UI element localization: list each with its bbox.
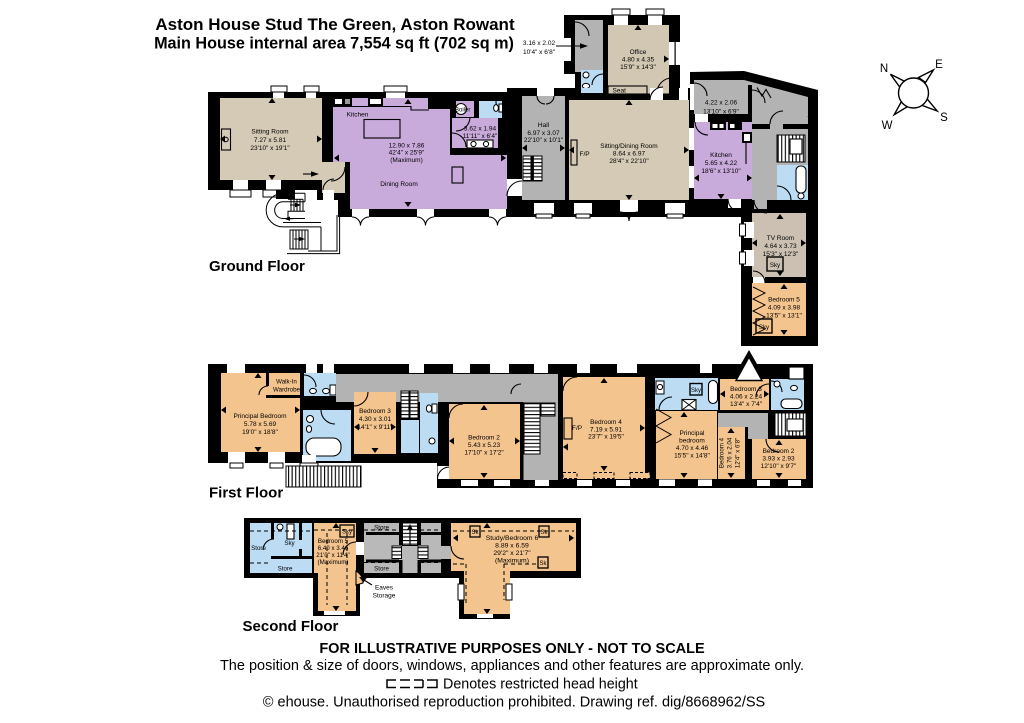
svg-text:Bedroom 4: Bedroom 4	[590, 419, 622, 426]
svg-text:Bedroom 5: Bedroom 5	[768, 297, 800, 304]
svg-text:Denotes restricted head height: Denotes restricted head height	[443, 677, 638, 693]
svg-text:3.16 x 2.02: 3.16 x 2.02	[523, 40, 556, 47]
svg-text:N: N	[880, 63, 888, 75]
svg-text:Walk-In: Walk-In	[276, 379, 297, 386]
svg-text:Store: Store	[278, 565, 293, 572]
svg-text:22'10" x 10'1": 22'10" x 10'1"	[524, 137, 564, 144]
svg-text:Store: Store	[374, 525, 389, 532]
svg-text:Kitchen: Kitchen	[347, 112, 369, 119]
svg-text:Store: Store	[374, 565, 389, 572]
svg-text:Second Floor: Second Floor	[243, 618, 339, 635]
svg-text:Bedroom 4: Bedroom 4	[719, 437, 726, 468]
svg-text:4.30 x 3.01: 4.30 x 3.01	[359, 416, 392, 423]
svg-text:13'4" x 7'4": 13'4" x 7'4"	[730, 401, 763, 408]
svg-text:Sk: Sk	[539, 561, 547, 567]
svg-text:Eaves: Eaves	[375, 585, 394, 592]
svg-text:The position & size of doors,: The position & size of doors, windows, a…	[220, 658, 804, 674]
svg-text:23'7" x 19'5": 23'7" x 19'5"	[588, 434, 624, 441]
svg-text:13'10" x 6'9": 13'10" x 6'9"	[703, 109, 739, 116]
svg-text:7.27 x 5.81: 7.27 x 5.81	[254, 137, 287, 144]
svg-text:17'10" x 17'2": 17'10" x 17'2"	[464, 450, 504, 457]
svg-text:Sky: Sky	[759, 324, 770, 331]
svg-text:11'11" x 6'4": 11'11" x 6'4"	[463, 133, 498, 140]
svg-text:Main House internal area 7,554: Main House internal area 7,554 sq ft (70…	[154, 35, 514, 53]
svg-text:F/P: F/P	[580, 151, 590, 158]
svg-text:8.64 x 6.97: 8.64 x 6.97	[613, 151, 646, 158]
svg-text:Store: Store	[251, 545, 266, 552]
svg-text:3.62 x 1.94: 3.62 x 1.94	[464, 126, 497, 133]
svg-text:12.90 x 7.86: 12.90 x 7.86	[389, 142, 425, 149]
svg-text:E: E	[935, 59, 943, 71]
svg-text:28'4" x 22'10": 28'4" x 22'10"	[609, 158, 649, 165]
svg-text:F/P: F/P	[572, 425, 582, 432]
svg-text:Sitting Room: Sitting Room	[251, 129, 288, 136]
svg-text:Sky: Sky	[284, 540, 295, 547]
svg-text:Principal: Principal	[680, 430, 705, 437]
svg-text:© ehouse. Unauthorised reprodu: © ehouse. Unauthorised reproduction proh…	[263, 695, 765, 711]
svg-text:(Maximum): (Maximum)	[318, 559, 349, 566]
svg-text:Seat: Seat	[613, 88, 627, 95]
svg-text:29'2" x 21'7": 29'2" x 21'7"	[493, 550, 531, 557]
svg-text:19'0" x 18'8": 19'0" x 18'8"	[242, 429, 278, 436]
svg-text:(Maximum): (Maximum)	[495, 558, 529, 565]
svg-text:Hall: Hall	[538, 122, 550, 129]
svg-text:Bedroom 3: Bedroom 3	[730, 386, 762, 393]
svg-text:4.09 x 3.98: 4.09 x 3.98	[768, 305, 801, 312]
svg-text:42'4" x 25'9": 42'4" x 25'9"	[389, 150, 425, 157]
svg-text:Principal Bedroom: Principal Bedroom	[233, 413, 286, 420]
svg-text:14'1" x 9'11": 14'1" x 9'11"	[357, 424, 393, 431]
svg-text:Sitting/Dining Room: Sitting/Dining Room	[600, 143, 657, 150]
svg-text:10'4" x 6'8": 10'4" x 6'8"	[523, 49, 556, 56]
svg-text:TV Room: TV Room	[767, 235, 794, 242]
svg-text:Bedroom 5: Bedroom 5	[318, 538, 349, 545]
svg-text:15'9" x 14'3": 15'9" x 14'3"	[620, 64, 656, 71]
svg-text:4.22 x 2.06: 4.22 x 2.06	[705, 100, 738, 107]
svg-text:7.19 x 5.91: 7.19 x 5.91	[590, 426, 623, 433]
svg-text:Sky: Sky	[770, 262, 781, 269]
svg-text:5.43 x 5.23: 5.43 x 5.23	[468, 442, 501, 449]
svg-text:bedroom: bedroom	[679, 438, 705, 445]
svg-text:S: S	[940, 112, 948, 124]
svg-text:Study/Bedroom 6: Study/Bedroom 6	[486, 535, 539, 542]
svg-text:3.93 x 2.93: 3.93 x 2.93	[762, 456, 795, 463]
svg-text:(Maximum): (Maximum)	[390, 157, 423, 164]
svg-text:Storage: Storage	[373, 593, 396, 600]
svg-text:Kitchen: Kitchen	[710, 152, 732, 159]
svg-text:Dining Room: Dining Room	[380, 181, 418, 188]
svg-text:3.76 x 2.04: 3.76 x 2.04	[727, 437, 734, 468]
svg-text:Wardrobe: Wardrobe	[273, 387, 300, 394]
svg-text:4.80 x 4.35: 4.80 x 4.35	[622, 57, 655, 64]
svg-text:First Floor: First Floor	[209, 485, 283, 502]
svg-text:Office: Office	[630, 49, 647, 56]
svg-text:4.70 x 4.46: 4.70 x 4.46	[676, 445, 709, 452]
svg-text:Bedroom 3: Bedroom 3	[359, 408, 391, 415]
svg-text:23'10" x 19'1": 23'10" x 19'1"	[250, 145, 290, 152]
svg-text:6.97 x 3.07: 6.97 x 3.07	[527, 130, 560, 137]
svg-text:4.64 x 3.73: 4.64 x 3.73	[764, 243, 797, 250]
svg-text:Sky: Sky	[691, 388, 701, 394]
svg-text:5.65 x 4.22: 5.65 x 4.22	[705, 160, 738, 167]
svg-text:18'6" x 13'10": 18'6" x 13'10"	[701, 168, 741, 175]
svg-text:12'10" x 9'7": 12'10" x 9'7"	[761, 463, 797, 470]
svg-text:Ground Floor: Ground Floor	[209, 258, 305, 275]
svg-text:Bedroom 2: Bedroom 2	[468, 435, 500, 442]
svg-text:5.78 x 5.69: 5.78 x 5.69	[244, 421, 277, 428]
svg-text:Aston House Stud The Green, As: Aston House Stud The Green, Aston Rowant	[155, 15, 515, 34]
svg-text:4.06 x 2.24: 4.06 x 2.24	[730, 394, 763, 401]
svg-text:21'0" x 11'4": 21'0" x 11'4"	[316, 552, 349, 559]
svg-text:8.89 x 6.59: 8.89 x 6.59	[495, 543, 529, 550]
svg-text:W: W	[882, 120, 893, 132]
svg-text:Boiler: Boiler	[455, 108, 470, 114]
svg-text:12'4" x 6'8": 12'4" x 6'8"	[735, 438, 742, 469]
svg-text:15'5" x 14'8": 15'5" x 14'8"	[674, 453, 710, 460]
svg-text:FOR ILLUSTRATIVE PURPOSES ONLY: FOR ILLUSTRATIVE PURPOSES ONLY - NOT TO …	[319, 641, 705, 657]
